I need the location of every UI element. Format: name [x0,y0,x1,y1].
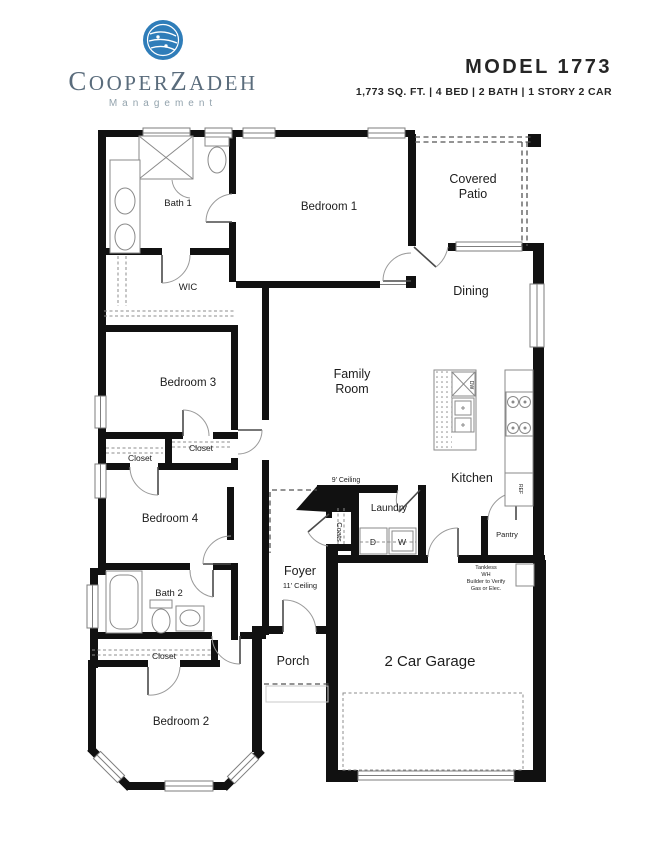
room-label-bath1: Bath 1 [164,198,191,209]
room-label-dining: Dining [453,284,488,298]
door-icon [203,536,231,564]
range-fixture [506,392,533,436]
room-label-closet-bed4: Closet [128,453,153,463]
appliance-label-fridge: REF [517,484,523,494]
toilet-fixture [150,600,172,633]
room-label-covered-patio-1: Covered [449,172,496,186]
room-label-kitchen: Kitchen [451,471,493,485]
porch-step [266,686,328,702]
note-wh-1: Tankless [475,565,497,571]
garage-parking-pad [343,693,523,770]
room-label-bedroom4: Bedroom 4 [142,513,199,525]
door-icon [308,514,329,546]
room-label-porch: Porch [277,654,310,668]
note-wh-4: Gas or Elec. [471,586,502,592]
door-icon [206,194,232,222]
shower-fixture [139,136,193,179]
note-wh-3: Builder to Verify [467,579,506,585]
room-label-family-2: Room [335,382,368,396]
room-label-bedroom3: Bedroom 3 [160,377,216,389]
floorplan-page: { "header": { "logo": { "seg1": "C", "se… [0,0,650,841]
window-icon [87,585,98,628]
door-icon [428,528,458,557]
window-icon [456,242,522,251]
room-label-wic: WIC [179,282,198,293]
shower-door-icon [172,180,190,198]
door-icon [190,570,213,597]
garage-door [358,771,514,780]
room-label-coats: Coats [335,522,344,542]
appliance-label-washer: W [398,537,406,547]
door-icon [238,430,262,454]
room-label-garage: 2 Car Garage [385,653,476,670]
window-icon [93,751,124,782]
bathtub-fixture [106,571,142,633]
room-label-bath2: Bath 2 [155,588,182,599]
window-icon [227,752,258,783]
room-label-pantry: Pantry [496,530,518,539]
window-icon [165,781,213,791]
water-heater-fixture [516,564,534,586]
window-icon [530,284,544,347]
note-wh-2: WH [481,572,490,578]
room-label-covered-patio-2: Patio [459,187,488,201]
walls [88,130,546,790]
windows [87,128,544,791]
room-label-foyer: Foyer [284,564,316,578]
window-icon [95,396,106,428]
window-icon [243,128,275,138]
room-label-closet-bed3: Closet [189,443,214,453]
floorplan-drawing: Bath 1 Bedroom 1 Covered Patio Dining WI… [0,0,650,841]
vanity-sinks-fixture [110,160,140,253]
front-door-icon [283,600,316,632]
toilet-fixture [205,137,229,173]
appliance-label-dishwasher: DW [468,381,474,390]
window-icon [368,128,405,138]
window-icon [95,464,106,498]
door-icon [183,410,209,436]
room-label-laundry: Laundry [371,503,407,514]
sink-fixture [176,606,204,631]
door-icon [130,467,158,495]
note-ceiling-11ft: 11' Ceiling [283,581,317,590]
appliance-label-dryer: D [370,537,376,547]
door-icon [414,247,448,267]
room-label-bedroom2: Bedroom 2 [153,716,209,728]
room-label-closet-bed2: Closet [152,651,177,661]
room-label-family-1: Family [334,367,372,381]
door-icon [148,667,180,695]
note-ceiling-9ft: 9' Ceiling [332,477,361,484]
room-label-bedroom1: Bedroom 1 [301,201,357,213]
door-icon [162,255,190,283]
